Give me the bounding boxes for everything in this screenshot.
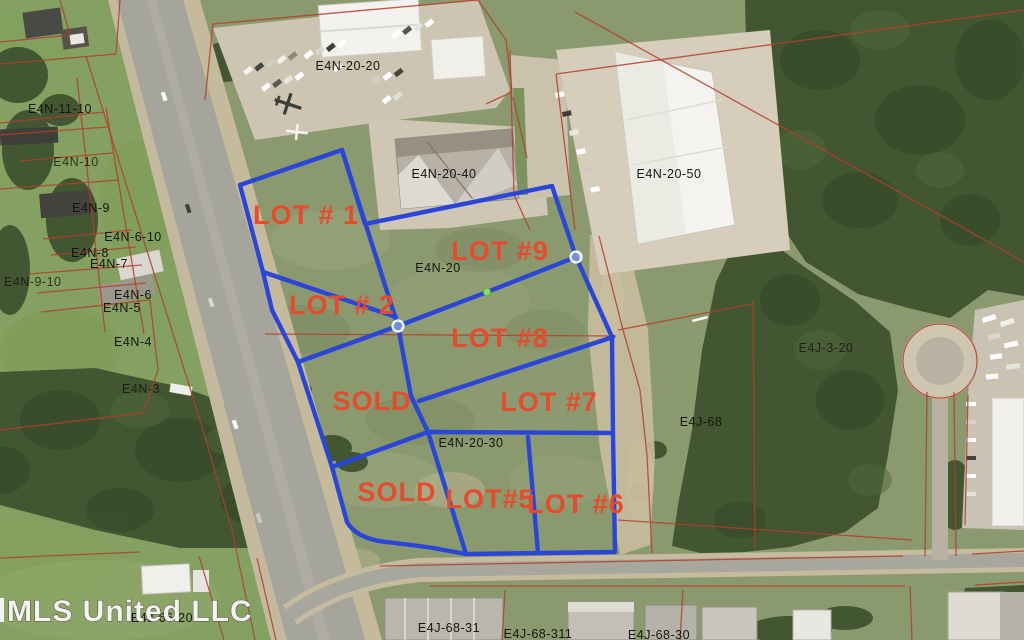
- parcel-label: E4N-5: [103, 301, 141, 315]
- parcel-label: E4J-68-31: [418, 621, 480, 635]
- parcel-label: E4N-10: [53, 155, 98, 169]
- parcel-label: E4N-11-10: [28, 102, 92, 116]
- aerial-lot-map: E4N-11-10 E4N-10 E4N-9 E4N-6-10 E4N-8 E4…: [0, 0, 1024, 640]
- green-dot-marker: [483, 288, 490, 295]
- watermark-text: MLS United LLC: [7, 595, 253, 628]
- lot-sold-label: SOLD: [357, 477, 436, 507]
- parcel-label: E4N-7: [90, 257, 128, 271]
- watermark-edge-artifact: [0, 598, 4, 622]
- lot-sold-label: SOLD: [332, 386, 411, 416]
- lot-label: LOT # 1: [253, 200, 359, 230]
- parcel-label: E4J-68-30: [628, 628, 690, 640]
- divider-lot7-bottom: [428, 432, 613, 433]
- parcel-label: E4N-9: [72, 201, 110, 215]
- lot-label: LOT # 2: [289, 290, 395, 320]
- parcel-label: E4J-68-311: [504, 627, 573, 640]
- parcel-label: E4N-6: [114, 288, 152, 302]
- parcel-label: E4J-68: [680, 415, 723, 429]
- parcel-label: E4N-3: [122, 382, 160, 396]
- parcel-label: E4J-3-20: [799, 341, 854, 355]
- parcel-label: E4N-9-10: [4, 275, 62, 289]
- parcel-label: E4N-20-50: [637, 167, 702, 181]
- parcel-label: E4N-20-20: [316, 59, 381, 73]
- lot-label: LOT #7: [500, 387, 598, 417]
- watermark: MLS United LLC: [0, 595, 253, 628]
- parcel-label: E4N-6-10: [104, 230, 162, 244]
- parcel-label: E4N-20-40: [412, 167, 477, 181]
- map-image: E4N-11-10 E4N-10 E4N-9 E4N-6-10 E4N-8 E4…: [0, 0, 1024, 640]
- parcel-label: E4N-20-30: [439, 436, 504, 450]
- lot-label: LOT #8: [451, 323, 549, 353]
- vertex-circle-marker: [571, 252, 582, 263]
- lot-label: LOT#5: [445, 484, 534, 514]
- lot-label: LOT #6: [527, 489, 625, 519]
- parcel-label: E4N-4: [114, 335, 152, 349]
- vertex-circle-marker: [393, 321, 404, 332]
- warehouse-right-edge: [992, 398, 1024, 526]
- lot-label: LOT #9: [451, 236, 549, 266]
